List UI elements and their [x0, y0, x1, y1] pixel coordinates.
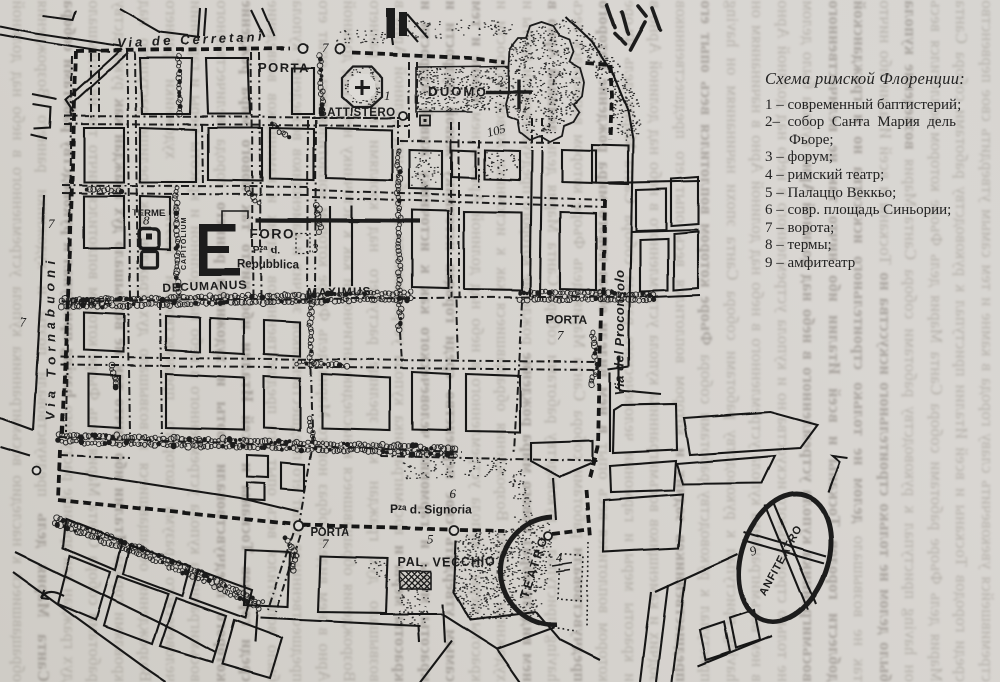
svg-text:4: 4	[556, 550, 563, 565]
svg-text:PORTA: PORTA	[258, 60, 310, 75]
svg-text:DECUMANUS: DECUMANUS	[162, 278, 248, 295]
svg-text:PORTA: PORTA	[70, 295, 111, 309]
svg-text:2: 2	[497, 72, 504, 87]
svg-text:Via Tornabuoni: Via Tornabuoni	[43, 256, 58, 420]
svg-text:3: 3	[311, 240, 319, 255]
svg-text:1: 1	[384, 88, 391, 103]
svg-text:7: 7	[557, 328, 564, 343]
svg-text:Pza d. Signoria: Pza d. Signoria	[390, 502, 472, 516]
svg-text:6: 6	[449, 486, 456, 501]
svg-text:7: 7	[322, 536, 329, 551]
svg-text:PORTA: PORTA	[310, 527, 349, 539]
svg-text:MAXIMUS: MAXIMUS	[307, 285, 372, 299]
svg-text:PORTA: PORTA	[546, 313, 587, 327]
svg-text:PAL. VECCHIO: PAL. VECCHIO	[398, 555, 496, 569]
svg-text:Via del Proconsolo: Via del Proconsolo	[612, 269, 627, 395]
svg-text:DUOMO: DUOMO	[428, 84, 488, 99]
svg-text:7: 7	[322, 40, 329, 55]
svg-text:5: 5	[427, 531, 434, 546]
svg-text:7: 7	[20, 314, 27, 329]
svg-text:105: 105	[485, 120, 508, 140]
svg-text:7: 7	[48, 216, 55, 231]
svg-text:CAPITOLIUM: CAPITOLIUM	[181, 217, 188, 270]
svg-text:Pza d.: Pza d.	[253, 243, 280, 256]
svg-text:Repubblica: Repubblica	[237, 259, 300, 271]
svg-text:BATTISTERO: BATTISTERO	[318, 107, 396, 119]
svg-text:8: 8	[143, 213, 150, 228]
svg-text:FORO: FORO	[250, 226, 295, 241]
